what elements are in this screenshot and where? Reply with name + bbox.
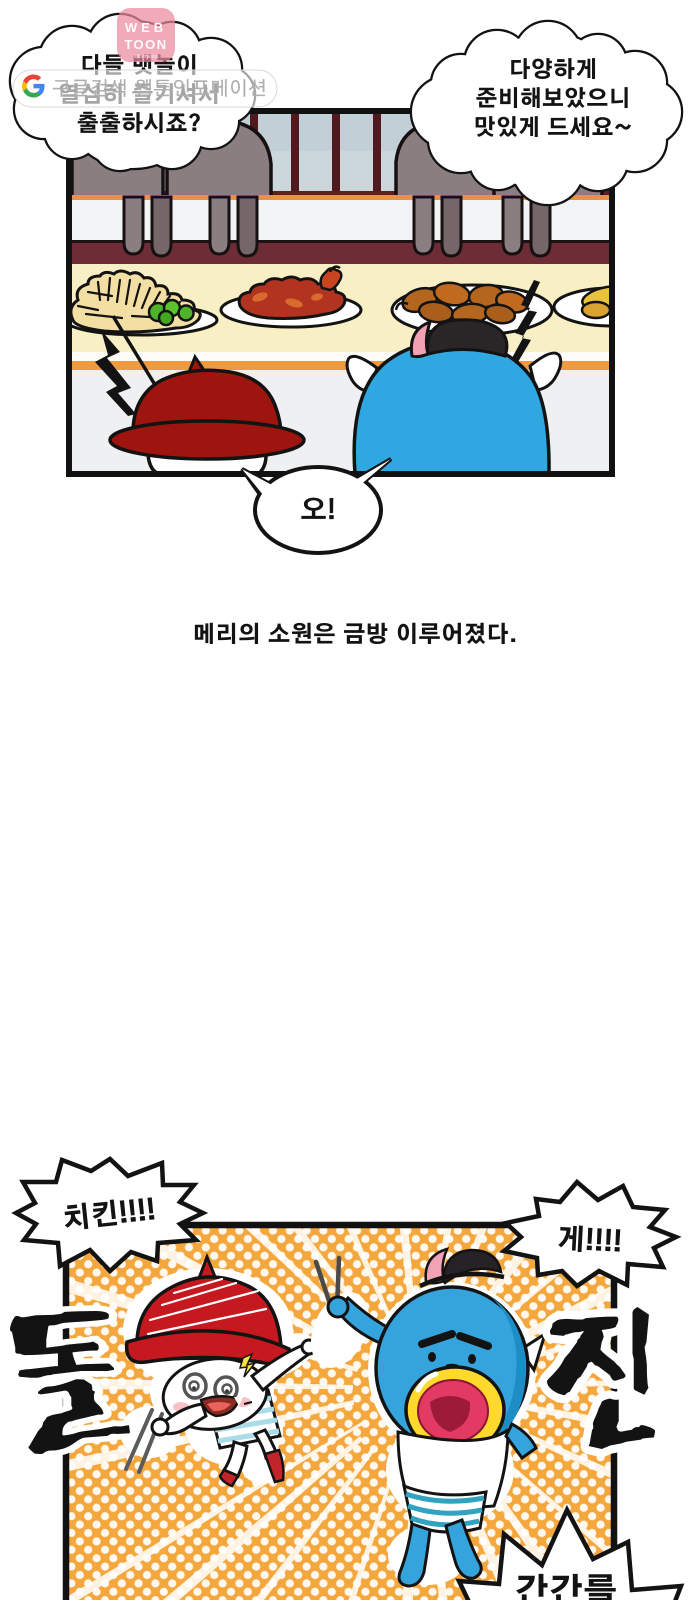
svg-text:WEB: WEB [125,20,167,35]
svg-text:Information: Information [133,54,158,60]
svg-text:TOON: TOON [124,37,167,52]
